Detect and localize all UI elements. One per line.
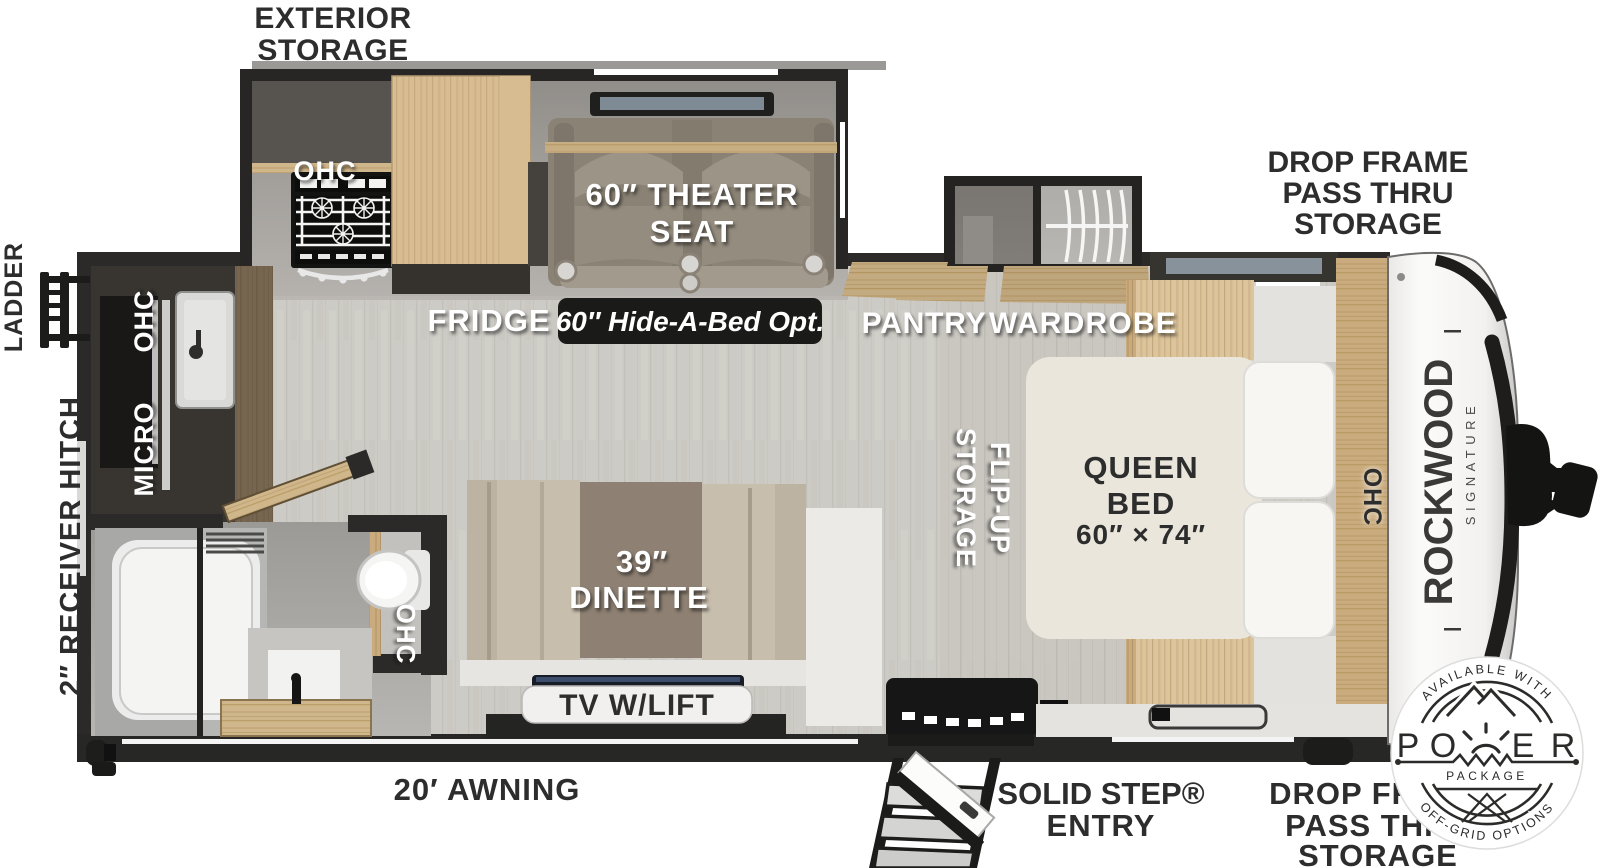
svg-text:OHC: OHC xyxy=(391,604,421,665)
svg-text:BED: BED xyxy=(1107,486,1175,521)
svg-text:39″: 39″ xyxy=(616,544,668,579)
svg-text:R: R xyxy=(1551,727,1576,765)
svg-text:2″ RECEIVER HITCH: 2″ RECEIVER HITCH xyxy=(55,396,87,696)
svg-text:FRIDGE: FRIDGE xyxy=(427,303,550,338)
svg-text:PASS THRU: PASS THRU xyxy=(1282,177,1453,210)
svg-text:STORAGE: STORAGE xyxy=(257,34,408,67)
svg-text:P: P xyxy=(1397,727,1420,765)
svg-text:QUEEN: QUEEN xyxy=(1083,450,1198,485)
svg-text:EXTERIOR: EXTERIOR xyxy=(254,2,411,35)
svg-text:LADDER: LADDER xyxy=(0,242,28,352)
svg-text:SIGNATURE: SIGNATURE xyxy=(1463,401,1478,525)
svg-text:E: E xyxy=(1512,727,1535,765)
svg-text:WARDROBE: WARDROBE xyxy=(989,307,1177,340)
svg-text:DINETTE: DINETTE xyxy=(569,580,709,615)
svg-text:PACKAGE: PACKAGE xyxy=(1446,769,1528,783)
svg-text:60″ Hide-A-Bed Opt.: 60″ Hide-A-Bed Opt. xyxy=(556,306,825,337)
svg-text:ENTRY: ENTRY xyxy=(1047,808,1156,843)
svg-text:OHC: OHC xyxy=(1358,468,1386,527)
svg-text:O: O xyxy=(1430,727,1456,765)
svg-text:MICRO: MICRO xyxy=(129,402,159,497)
svg-text:OHC: OHC xyxy=(294,156,357,186)
svg-text:20′ AWNING: 20′ AWNING xyxy=(394,772,581,807)
svg-text:60″ × 74″: 60″ × 74″ xyxy=(1076,519,1206,550)
svg-text:OHC: OHC xyxy=(129,290,159,353)
svg-text:TV W/LIFT: TV W/LIFT xyxy=(559,689,715,722)
svg-text:PANTRY: PANTRY xyxy=(862,307,987,340)
svg-text:FLIP-UP: FLIP-UP xyxy=(985,442,1015,554)
svg-text:60″ THEATER: 60″ THEATER xyxy=(585,177,798,212)
svg-text:STORAGE: STORAGE xyxy=(1298,838,1458,868)
svg-text:STORAGE: STORAGE xyxy=(951,428,981,568)
svg-text:DROP FRAME: DROP FRAME xyxy=(1267,146,1468,179)
svg-text:ROCKWOOD: ROCKWOOD xyxy=(1417,359,1461,606)
svg-text:SEAT: SEAT xyxy=(650,214,734,249)
svg-text:SOLID STEP®: SOLID STEP® xyxy=(997,776,1204,811)
svg-text:STORAGE: STORAGE xyxy=(1294,208,1442,241)
